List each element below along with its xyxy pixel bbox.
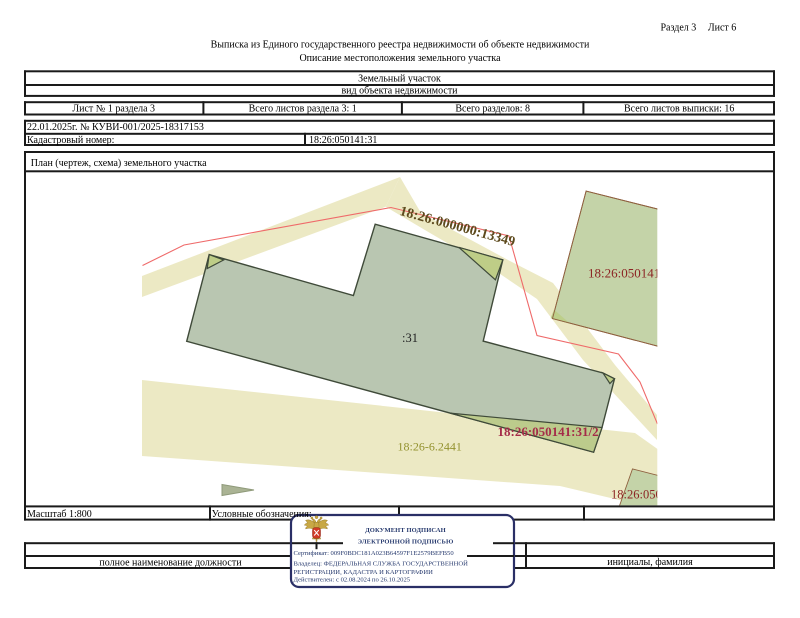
svg-text:Всего листов раздела 3: 1: Всего листов раздела 3: 1 [249,103,357,114]
svg-text:Раздел 3: Раздел 3 [661,23,697,34]
svg-text:Кадастровый номер:: Кадастровый номер: [27,135,114,146]
svg-text:18:26:050: 18:26:050 [611,488,662,502]
svg-text:18:26-6.2441: 18:26-6.2441 [398,440,462,454]
svg-text:Всего разделов: 8: Всего разделов: 8 [455,103,530,114]
svg-text:ЭЛЕКТРОННОЙ ПОДПИСЬЮ: ЭЛЕКТРОННОЙ ПОДПИСЬЮ [358,538,454,546]
svg-text:Всего листов выписки: 16: Всего листов выписки: 16 [624,103,734,114]
svg-text:инициалы, фамилия: инициалы, фамилия [607,557,693,568]
svg-text:вид объекта недвижимости: вид объекта недвижимости [341,86,458,97]
svg-text:Лист 6: Лист 6 [708,23,736,34]
svg-text:ДОКУМЕНТ ПОДПИСАН: ДОКУМЕНТ ПОДПИСАН [365,527,446,534]
svg-text:Условные обозначения:: Условные обозначения: [212,509,312,520]
svg-text:Сертификат: 009F0BDC181A023B64: Сертификат: 009F0BDC181A023B64597F1E2579… [294,550,455,557]
svg-text:Действителен: с 02.08.2024 по: Действителен: с 02.08.2024 по 26.10.2025 [294,577,411,584]
svg-text:полное наименование должности: полное наименование должности [99,557,242,568]
svg-text:Описание местоположения земель: Описание местоположения земельного участ… [299,53,501,64]
svg-text:Выписка из Единого государстве: Выписка из Единого государственного реес… [211,39,590,50]
svg-text:18:26:050141: 18:26:050141 [588,265,660,280]
svg-text:18:26:050141:31: 18:26:050141:31 [309,135,377,146]
svg-text:18:26:050141:31/2: 18:26:050141:31/2 [498,424,599,439]
svg-text:Лист № 1 раздела 3: Лист № 1 раздела 3 [72,103,155,114]
svg-text::31: :31 [402,331,418,345]
svg-text:Земельный участок: Земельный участок [358,74,441,85]
svg-text:22.01.2025г. № КУВИ-001/2025-1: 22.01.2025г. № КУВИ-001/2025-18317153 [27,122,204,133]
svg-text:План (чертеж, схема) земельног: План (чертеж, схема) земельного участка [31,158,207,169]
svg-text:Владелец: ФЕДЕРАЛЬНАЯ СЛУЖБА Г: Владелец: ФЕДЕРАЛЬНАЯ СЛУЖБА ГОСУДАРСТВЕ… [294,559,469,567]
svg-text:РЕГИСТРАЦИИ, КАДАСТРА И КАРТОГ: РЕГИСТРАЦИИ, КАДАСТРА И КАРТОГРАФИИ [294,569,434,576]
svg-text:Масштаб 1:800: Масштаб 1:800 [27,509,92,520]
